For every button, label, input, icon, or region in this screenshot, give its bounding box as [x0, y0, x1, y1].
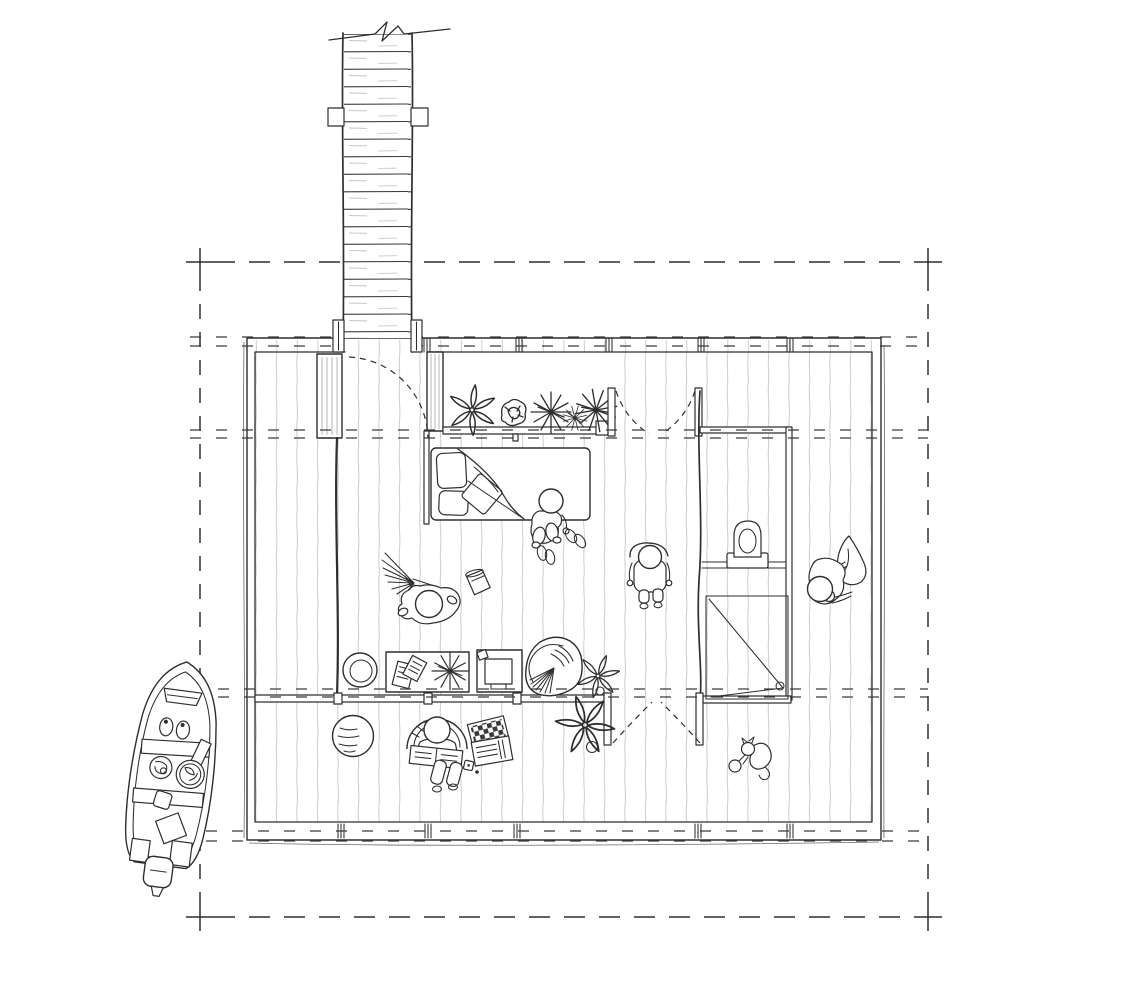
monitor-icon	[485, 659, 512, 684]
bed	[431, 448, 590, 520]
computer-desk	[477, 650, 522, 692]
round-rug	[333, 716, 374, 757]
dock	[328, 22, 450, 352]
boat	[115, 657, 228, 902]
round-basket	[343, 653, 377, 687]
planter-bay	[443, 353, 621, 441]
deck-door-stub-right	[696, 693, 703, 745]
bathroom-east-wall	[786, 427, 792, 700]
outboard-motor	[141, 855, 174, 897]
floor-plan-page	[0, 0, 1126, 1000]
dock-cleat-right	[411, 108, 428, 126]
floor-plan-canvas	[0, 0, 1126, 1000]
ball-icon	[729, 760, 741, 772]
desk-with-papers	[386, 652, 469, 692]
dock-cleat-left	[328, 108, 344, 126]
door-stub-left	[608, 388, 615, 436]
marble	[475, 770, 479, 774]
bedroom-wall-stub	[424, 431, 429, 524]
entry-closet	[317, 354, 342, 438]
deck-door-stub-left	[604, 693, 611, 745]
cat-head	[742, 743, 755, 756]
die-icon	[463, 760, 474, 771]
